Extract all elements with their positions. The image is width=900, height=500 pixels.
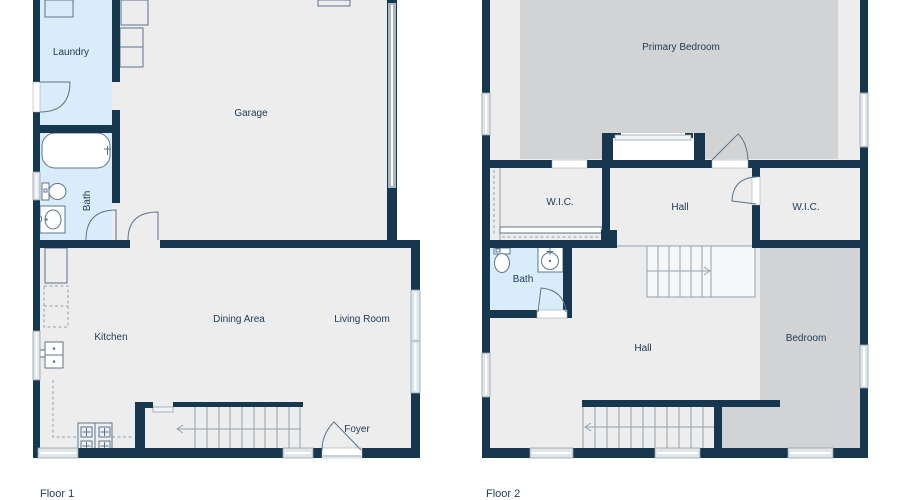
floor2-floor-fills bbox=[490, 0, 860, 448]
room-label-wic-left: W.I.C. bbox=[546, 197, 573, 208]
laundry-room-fill bbox=[40, 0, 112, 125]
toilet2-bowl-icon bbox=[495, 254, 510, 273]
room-label-primary: Primary Bedroom bbox=[642, 42, 720, 53]
laundry-entry-opening bbox=[33, 82, 40, 112]
room-label-bath1: Bath bbox=[82, 191, 93, 212]
bath1-faucet-dot bbox=[45, 218, 47, 220]
bathtub-icon bbox=[42, 133, 110, 168]
room-label-dining: Dining Area bbox=[213, 314, 265, 325]
room-label-wic-right: W.I.C. bbox=[792, 202, 819, 213]
sink-drain-dot bbox=[53, 360, 56, 363]
floor1-title: Floor 1 bbox=[40, 488, 74, 500]
wic-right-opening bbox=[752, 177, 760, 205]
wic-left-opening bbox=[552, 160, 587, 168]
bath2-drain-dot bbox=[549, 260, 551, 262]
wic-shelf bbox=[500, 227, 602, 233]
room-label-hall-upper: Hall bbox=[671, 202, 688, 213]
primary-door-opening bbox=[712, 160, 748, 168]
closet-shelf bbox=[615, 135, 691, 140]
sink-drain-dot bbox=[53, 347, 56, 350]
bath2-door-opening bbox=[537, 310, 567, 318]
floorplan-svg: Laundry Garage Bath Kitchen Dining Area … bbox=[0, 0, 900, 500]
floor1-plan: Laundry Garage Bath Kitchen Dining Area … bbox=[33, 0, 420, 500]
room-label-bath2: Bath bbox=[513, 274, 534, 285]
floor1-floor-fills bbox=[40, 0, 411, 448]
floor2-plan: Primary Bedroom W.I.C. Hall W.I.C. Bath … bbox=[482, 0, 868, 500]
toilet1-bowl-icon bbox=[49, 184, 66, 200]
room-label-kitchen: Kitchen bbox=[94, 332, 127, 343]
floor2-title: Floor 2 bbox=[486, 488, 520, 500]
room-label-garage: Garage bbox=[234, 108, 268, 119]
room-label-hall-lower: Hall bbox=[634, 343, 651, 354]
bedroom-carpet bbox=[722, 407, 860, 448]
room-label-living: Living Room bbox=[334, 314, 390, 325]
floorplan-canvas: Laundry Garage Bath Kitchen Dining Area … bbox=[0, 0, 900, 500]
stair-landing-edge bbox=[153, 407, 173, 412]
room-label-foyer: Foyer bbox=[344, 424, 370, 435]
room-label-bedroom: Bedroom bbox=[786, 333, 827, 344]
kitchen-faucet-icon bbox=[40, 350, 45, 357]
room-label-laundry: Laundry bbox=[53, 47, 89, 58]
